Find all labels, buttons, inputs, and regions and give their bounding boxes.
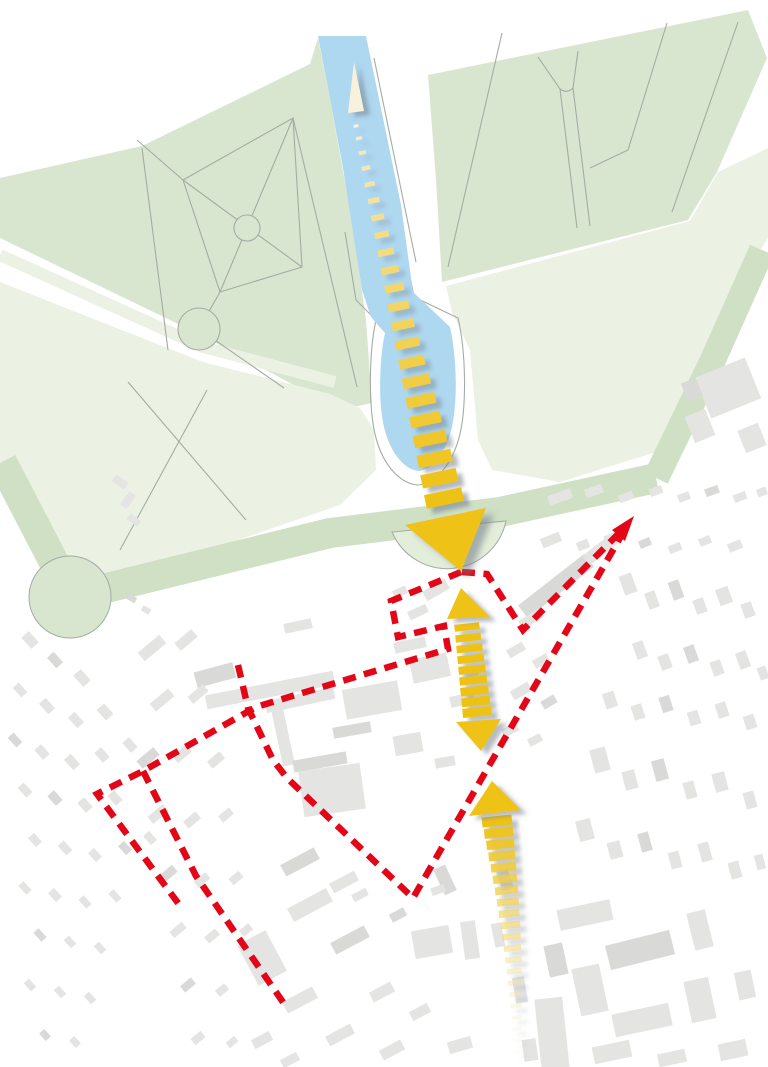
building bbox=[657, 653, 672, 671]
building bbox=[651, 758, 669, 782]
south-trail-dashes-shadow bbox=[516, 1008, 528, 1014]
building bbox=[239, 923, 253, 937]
building bbox=[47, 790, 62, 806]
building bbox=[540, 532, 562, 549]
building bbox=[48, 888, 62, 902]
masterplan-diagram-svg bbox=[0, 0, 768, 1067]
building bbox=[28, 833, 42, 847]
building bbox=[330, 925, 370, 954]
south-trail-dashes bbox=[512, 1027, 522, 1032]
south-trail-dashes bbox=[514, 1050, 521, 1054]
building bbox=[692, 597, 707, 615]
building bbox=[630, 703, 645, 721]
south-trail-dashes-shadow bbox=[518, 1032, 528, 1037]
building bbox=[226, 1036, 239, 1048]
roundabout bbox=[29, 556, 111, 638]
building bbox=[143, 831, 157, 845]
building bbox=[743, 714, 758, 731]
building bbox=[215, 983, 229, 997]
building bbox=[407, 604, 429, 621]
building bbox=[77, 797, 92, 813]
building bbox=[88, 848, 102, 862]
building bbox=[207, 751, 225, 768]
building bbox=[369, 982, 395, 1003]
building bbox=[18, 881, 31, 895]
building bbox=[540, 694, 557, 709]
building bbox=[602, 691, 618, 710]
building bbox=[711, 771, 728, 793]
building bbox=[411, 925, 453, 959]
building bbox=[33, 928, 46, 942]
building bbox=[325, 1024, 355, 1047]
building bbox=[237, 930, 287, 986]
building bbox=[575, 818, 595, 842]
building bbox=[677, 491, 691, 503]
building bbox=[58, 840, 73, 855]
building bbox=[735, 650, 751, 670]
building bbox=[637, 831, 653, 852]
building bbox=[734, 970, 756, 1001]
axis-trail-arrowhead-up bbox=[469, 781, 521, 816]
building bbox=[287, 888, 333, 922]
building bbox=[727, 860, 742, 879]
building bbox=[39, 1029, 51, 1041]
building bbox=[714, 701, 729, 719]
building bbox=[24, 979, 37, 992]
south-trail-dashes bbox=[511, 1015, 522, 1020]
fountain-circle-1 bbox=[178, 308, 220, 350]
building bbox=[644, 590, 660, 610]
building bbox=[108, 889, 121, 903]
building bbox=[430, 884, 446, 896]
fountain-circle-0 bbox=[234, 215, 260, 241]
building bbox=[506, 642, 526, 659]
building bbox=[576, 539, 590, 552]
building bbox=[683, 977, 716, 1023]
building bbox=[447, 1036, 473, 1054]
building bbox=[657, 1049, 687, 1067]
building bbox=[280, 1052, 300, 1067]
building bbox=[543, 942, 568, 977]
building bbox=[107, 790, 122, 806]
building bbox=[638, 537, 652, 549]
building bbox=[682, 780, 697, 799]
building bbox=[589, 746, 611, 773]
building bbox=[756, 487, 768, 498]
building bbox=[174, 629, 197, 651]
building bbox=[73, 669, 90, 687]
building bbox=[122, 737, 137, 753]
building bbox=[251, 1031, 273, 1049]
building bbox=[283, 618, 312, 634]
building bbox=[64, 936, 77, 949]
building bbox=[47, 652, 63, 668]
building bbox=[740, 601, 755, 619]
south-trail-dashes-shadow bbox=[517, 1020, 528, 1025]
building bbox=[683, 644, 699, 664]
building bbox=[534, 997, 569, 1067]
building bbox=[298, 763, 366, 817]
building bbox=[183, 811, 201, 828]
building bbox=[13, 682, 28, 697]
building bbox=[190, 1031, 205, 1045]
building bbox=[527, 733, 543, 747]
building bbox=[754, 854, 767, 871]
building bbox=[169, 922, 186, 938]
building bbox=[709, 659, 724, 677]
diagram-canvas bbox=[0, 0, 768, 1067]
building bbox=[39, 698, 55, 714]
building bbox=[78, 895, 91, 909]
building bbox=[8, 732, 23, 747]
building bbox=[34, 744, 49, 760]
building bbox=[611, 1003, 673, 1038]
building bbox=[737, 423, 766, 453]
building bbox=[332, 721, 371, 738]
south-trail-dashes bbox=[510, 1003, 522, 1009]
building bbox=[138, 635, 167, 661]
building bbox=[687, 710, 702, 727]
building bbox=[342, 680, 402, 719]
building bbox=[97, 703, 114, 720]
building bbox=[718, 1039, 749, 1061]
building bbox=[21, 631, 38, 649]
building bbox=[94, 747, 109, 763]
building bbox=[571, 964, 608, 1017]
building bbox=[280, 847, 320, 876]
building bbox=[556, 899, 613, 931]
building bbox=[434, 755, 455, 768]
building bbox=[667, 850, 682, 869]
building bbox=[194, 662, 237, 688]
building bbox=[141, 605, 152, 615]
building bbox=[150, 688, 175, 711]
building bbox=[605, 930, 675, 970]
south-trail-dashes bbox=[513, 1038, 521, 1042]
building bbox=[218, 807, 234, 822]
building bbox=[389, 907, 407, 922]
building bbox=[742, 790, 757, 809]
building bbox=[392, 732, 423, 757]
building bbox=[621, 769, 638, 791]
building bbox=[68, 712, 84, 728]
building bbox=[180, 977, 196, 992]
building bbox=[228, 871, 243, 885]
axis-link-arrowhead-up bbox=[447, 588, 490, 619]
building bbox=[715, 586, 733, 606]
building bbox=[409, 1003, 431, 1021]
building bbox=[704, 485, 720, 497]
building bbox=[69, 1036, 81, 1048]
building bbox=[271, 707, 295, 766]
building bbox=[204, 928, 220, 943]
building bbox=[510, 682, 532, 701]
building bbox=[84, 992, 97, 1005]
building bbox=[64, 754, 80, 770]
building bbox=[667, 542, 682, 554]
building bbox=[727, 539, 743, 553]
building bbox=[697, 841, 713, 862]
building bbox=[379, 1040, 405, 1061]
building bbox=[329, 871, 359, 894]
building bbox=[733, 491, 748, 503]
building bbox=[94, 942, 107, 955]
building bbox=[658, 695, 673, 714]
building bbox=[592, 1040, 633, 1065]
building bbox=[668, 579, 685, 601]
axis-link-arrowhead-down bbox=[456, 719, 501, 751]
building bbox=[632, 640, 648, 660]
building bbox=[698, 535, 712, 547]
building bbox=[54, 986, 67, 999]
building bbox=[18, 782, 33, 797]
building bbox=[351, 888, 369, 903]
building bbox=[607, 840, 624, 860]
building bbox=[757, 665, 768, 680]
building bbox=[460, 920, 480, 960]
building bbox=[686, 909, 714, 950]
building bbox=[282, 986, 318, 1013]
building bbox=[618, 572, 637, 595]
